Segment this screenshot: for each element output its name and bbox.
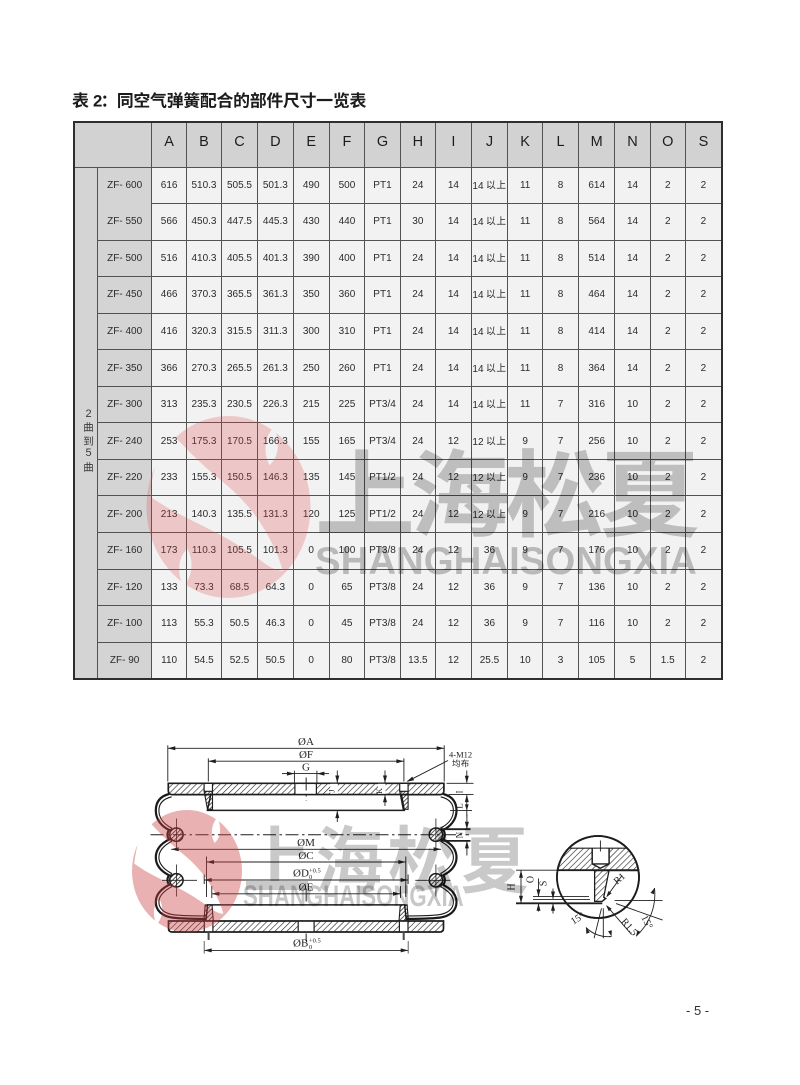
- svg-text:L: L: [454, 803, 464, 809]
- svg-text:ØD: ØD: [293, 867, 309, 879]
- svg-text:4-M12: 4-M12: [449, 750, 472, 760]
- svg-text:N: N: [454, 831, 464, 838]
- svg-text:ØC: ØC: [298, 850, 313, 862]
- svg-text:ØE: ØE: [299, 882, 314, 894]
- svg-text:ØB: ØB: [293, 937, 308, 949]
- svg-text:O: O: [525, 876, 536, 883]
- svg-text:K: K: [375, 788, 384, 794]
- svg-text:H: H: [507, 883, 518, 890]
- svg-text:+0.5: +0.5: [309, 868, 321, 875]
- svg-text:G: G: [302, 762, 310, 774]
- svg-text:J: J: [327, 789, 336, 792]
- svg-text:ØM: ØM: [297, 837, 315, 849]
- svg-text:ØA: ØA: [298, 736, 314, 748]
- svg-text:R1.5: R1.5: [618, 917, 639, 939]
- svg-text:ØF: ØF: [299, 749, 313, 761]
- svg-text:S: S: [538, 881, 549, 887]
- svg-text:+0.5: +0.5: [309, 938, 321, 945]
- svg-text:I: I: [454, 791, 464, 794]
